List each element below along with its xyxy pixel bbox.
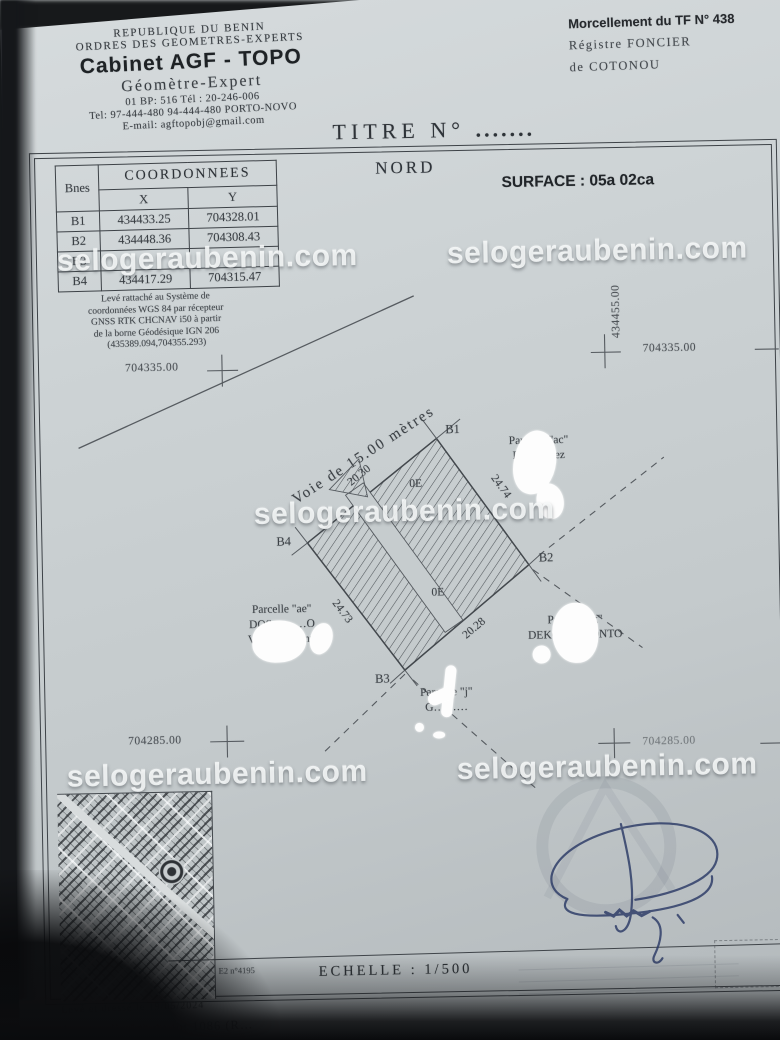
corner-label-b3: B3 [375,671,390,685]
corner-label-b2: B2 [539,550,554,564]
faint-stamp-circle [541,781,671,911]
signature [485,763,780,1009]
inset-reference: E2 n°4195 [219,965,255,976]
photo-canvas: REPUBLIQUE DU BENIN ORDRES DES GEOMETRES… [0,0,780,1040]
watermark: selogeraubenin.com [456,747,757,787]
redaction-blob [552,602,599,663]
corner-label-b1: B1 [445,422,460,436]
roundabout-symbol [158,858,184,884]
location-map-inset [57,791,216,1002]
watermark: selogeraubenin.com [254,492,555,532]
faint-typed-lines [519,964,739,994]
scale-label: ECHELLE : 1/500 [319,961,473,981]
inset-main-road [57,791,216,965]
document-paper: REPUBLIQUE DU BENIN ORDRES DES GEOMETRES… [0,0,780,1040]
road-boundary-line [76,296,417,448]
watermark: selogeraubenin.com [447,231,748,271]
corner-label-b4: B4 [276,534,292,548]
zone-mark-1: 0E [409,478,422,490]
watermark: selogeraubenin.com [67,755,368,795]
watermark: selogeraubenin.com [57,239,358,279]
zone-mark-2: 0E [431,586,444,598]
